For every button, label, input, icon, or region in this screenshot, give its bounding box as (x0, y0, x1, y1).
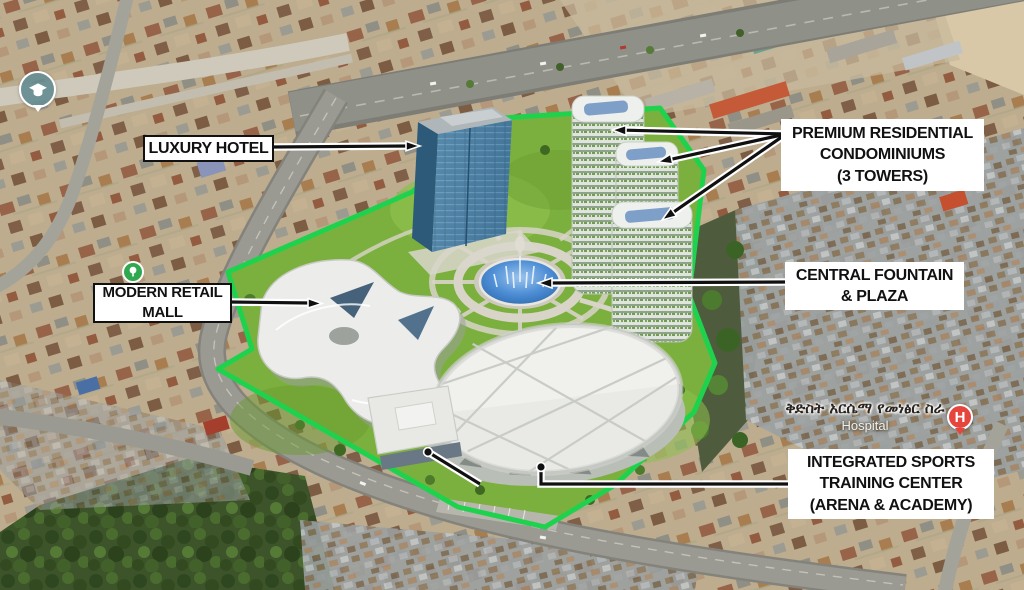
callout-premium-residential-text: PREMIUM RESIDENTIAL CONDOMINIUMS (3 TOWE… (792, 123, 973, 186)
tower-3 (612, 202, 692, 342)
hospital-category: Hospital (740, 418, 990, 433)
callout-premium-residential: PREMIUM RESIDENTIAL CONDOMINIUMS (3 TOWE… (781, 119, 984, 191)
park-poi-marker[interactable] (122, 261, 144, 283)
callout-retail-mall: MODERN RETAIL MALL (93, 283, 232, 323)
training-academy-building (368, 386, 462, 470)
callout-central-fountain-text: CENTRAL FOUNTAIN & PLAZA (796, 265, 953, 307)
hospital-name-amharic: ቅድስት አርሴማ የመነፅር ስራ (740, 399, 990, 417)
callout-sports-center-text: INTEGRATED SPORTS TRAINING CENTER (ARENA… (807, 452, 975, 515)
school-poi-marker[interactable] (19, 71, 56, 108)
hospital-map-label: ቅድስት አርሴማ የመነፅር ስራ Hospital (740, 399, 990, 433)
graduation-cap-icon (28, 82, 48, 98)
callout-retail-mall-text: MODERN RETAIL MALL (103, 283, 223, 323)
callout-luxury-hotel: LUXURY HOTEL (143, 135, 274, 162)
callout-sports-center: INTEGRATED SPORTS TRAINING CENTER (ARENA… (788, 449, 994, 519)
callout-central-fountain: CENTRAL FOUNTAIN & PLAZA (785, 262, 964, 310)
callout-luxury-hotel-text: LUXURY HOTEL (149, 138, 269, 159)
park-tree-icon (127, 266, 139, 278)
marker-pointer (33, 105, 43, 112)
